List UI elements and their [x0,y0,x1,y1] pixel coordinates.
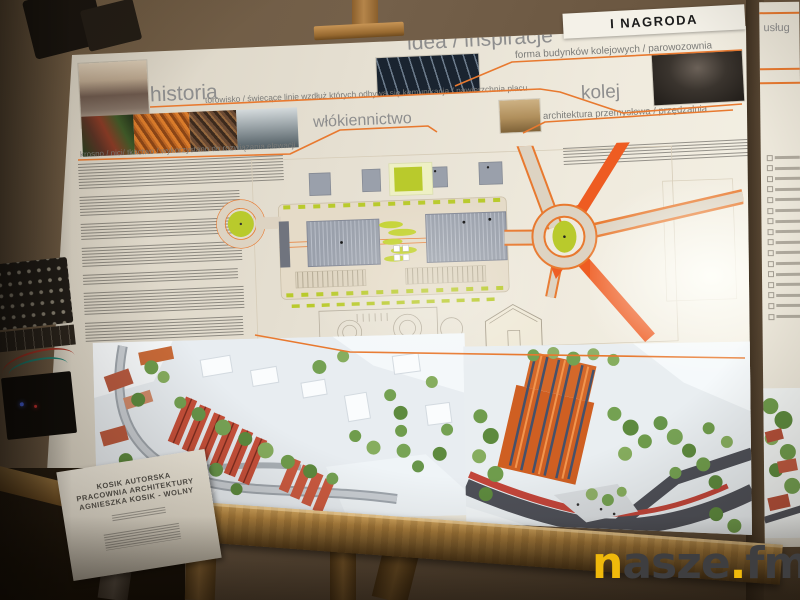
amp-unit [1,371,77,440]
watermark-fm: fm [745,538,800,589]
side-board-rendering [763,388,800,538]
side-board-text: usług [763,22,789,34]
watermark-n: n [592,538,622,589]
award-label: I NAGRODA [610,12,699,32]
mixer-panel [0,257,74,331]
side-board-rule-1 [759,12,799,14]
credit-small-lines [112,507,167,523]
watermark-dot: . [730,538,746,589]
credit-team-lines [104,523,182,551]
board-glare-soft [305,196,565,376]
side-board-rule-3 [760,82,800,84]
side-board-rule-2 [760,68,800,70]
side-board: usług [759,2,800,547]
photo-scene: usług [0,0,800,600]
watermark: nasze.fm [592,538,800,589]
watermark-asze: asze [622,538,729,589]
wall-speaker-bracket [80,0,143,52]
easel-top-clamp [314,22,405,41]
side-board-legend [761,150,800,320]
credit-card: KOSIK AUTORSKA PRACOWNIA ARCHITEKTURY AG… [56,449,221,581]
